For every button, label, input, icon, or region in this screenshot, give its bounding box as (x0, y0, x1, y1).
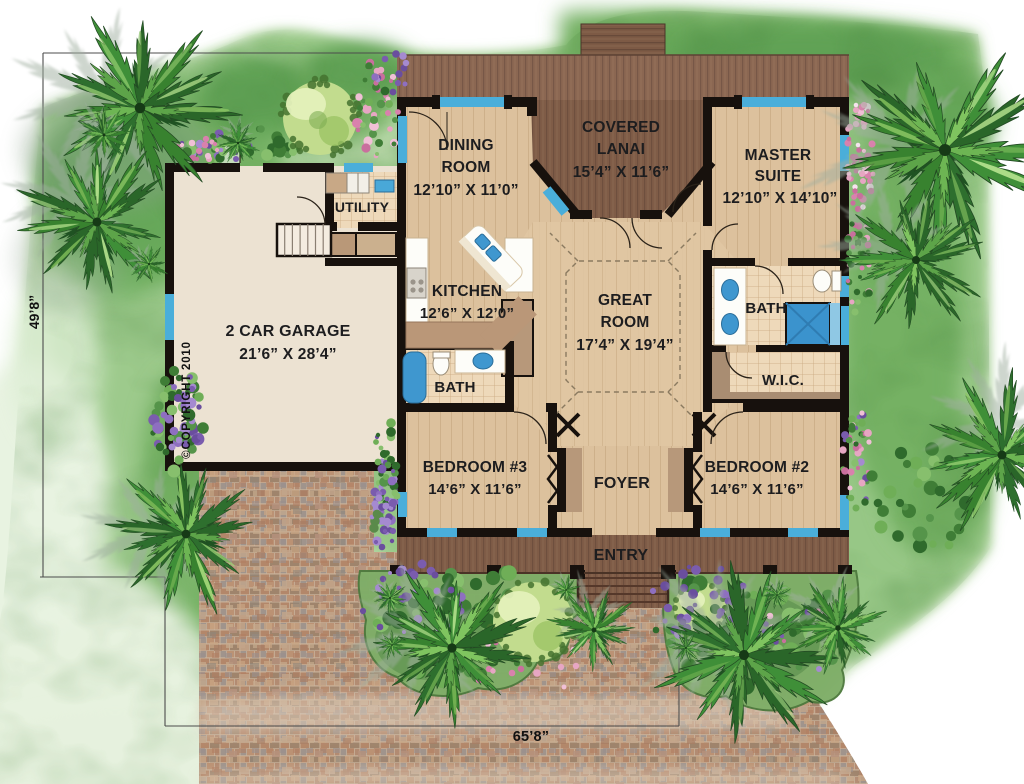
svg-text:W.I.C.: W.I.C. (762, 372, 804, 389)
svg-text:21’6” X 28’4”: 21’6” X 28’4” (239, 346, 336, 363)
svg-text:2 CAR GARAGE: 2 CAR GARAGE (225, 323, 350, 340)
svg-text:BEDROOM #2: BEDROOM #2 (705, 459, 810, 476)
svg-text:BATH: BATH (434, 379, 475, 396)
svg-text:14’6” X 11’6”: 14’6” X 11’6” (428, 481, 522, 498)
svg-text:COVERED: COVERED (582, 119, 660, 136)
svg-text:BEDROOM #3: BEDROOM #3 (423, 459, 528, 476)
svg-text:12’10” X 14’10”: 12’10” X 14’10” (722, 190, 837, 207)
svg-text:GREAT: GREAT (598, 292, 652, 309)
svg-text:12’10” X 11’0”: 12’10” X 11’0” (413, 182, 518, 199)
svg-text:17’4” X 19’4”: 17’4” X 19’4” (576, 337, 673, 354)
svg-text:BATH: BATH (745, 300, 786, 317)
svg-text:ROOM: ROOM (600, 314, 649, 331)
svg-text:SUITE: SUITE (755, 168, 802, 185)
svg-text:©COPYRIGHT 2010: ©COPYRIGHT 2010 (181, 341, 193, 459)
svg-text:DINING: DINING (438, 137, 493, 154)
svg-text:65’8”: 65’8” (513, 729, 549, 745)
svg-text:KITCHEN: KITCHEN (432, 283, 502, 300)
svg-text:FOYER: FOYER (594, 475, 650, 492)
svg-text:UTILITY: UTILITY (335, 199, 390, 215)
svg-text:49’8”: 49’8” (26, 295, 42, 329)
svg-text:MASTER: MASTER (745, 147, 812, 164)
svg-text:15’4” X 11’6”: 15’4” X 11’6” (573, 164, 670, 181)
svg-text:ENTRY: ENTRY (594, 547, 649, 564)
svg-text:14’6” X 11’6”: 14’6” X 11’6” (710, 481, 804, 498)
svg-text:LANAI: LANAI (597, 141, 645, 158)
svg-text:12’6” X 12’0”: 12’6” X 12’0” (420, 305, 514, 322)
svg-text:ROOM: ROOM (441, 159, 490, 176)
